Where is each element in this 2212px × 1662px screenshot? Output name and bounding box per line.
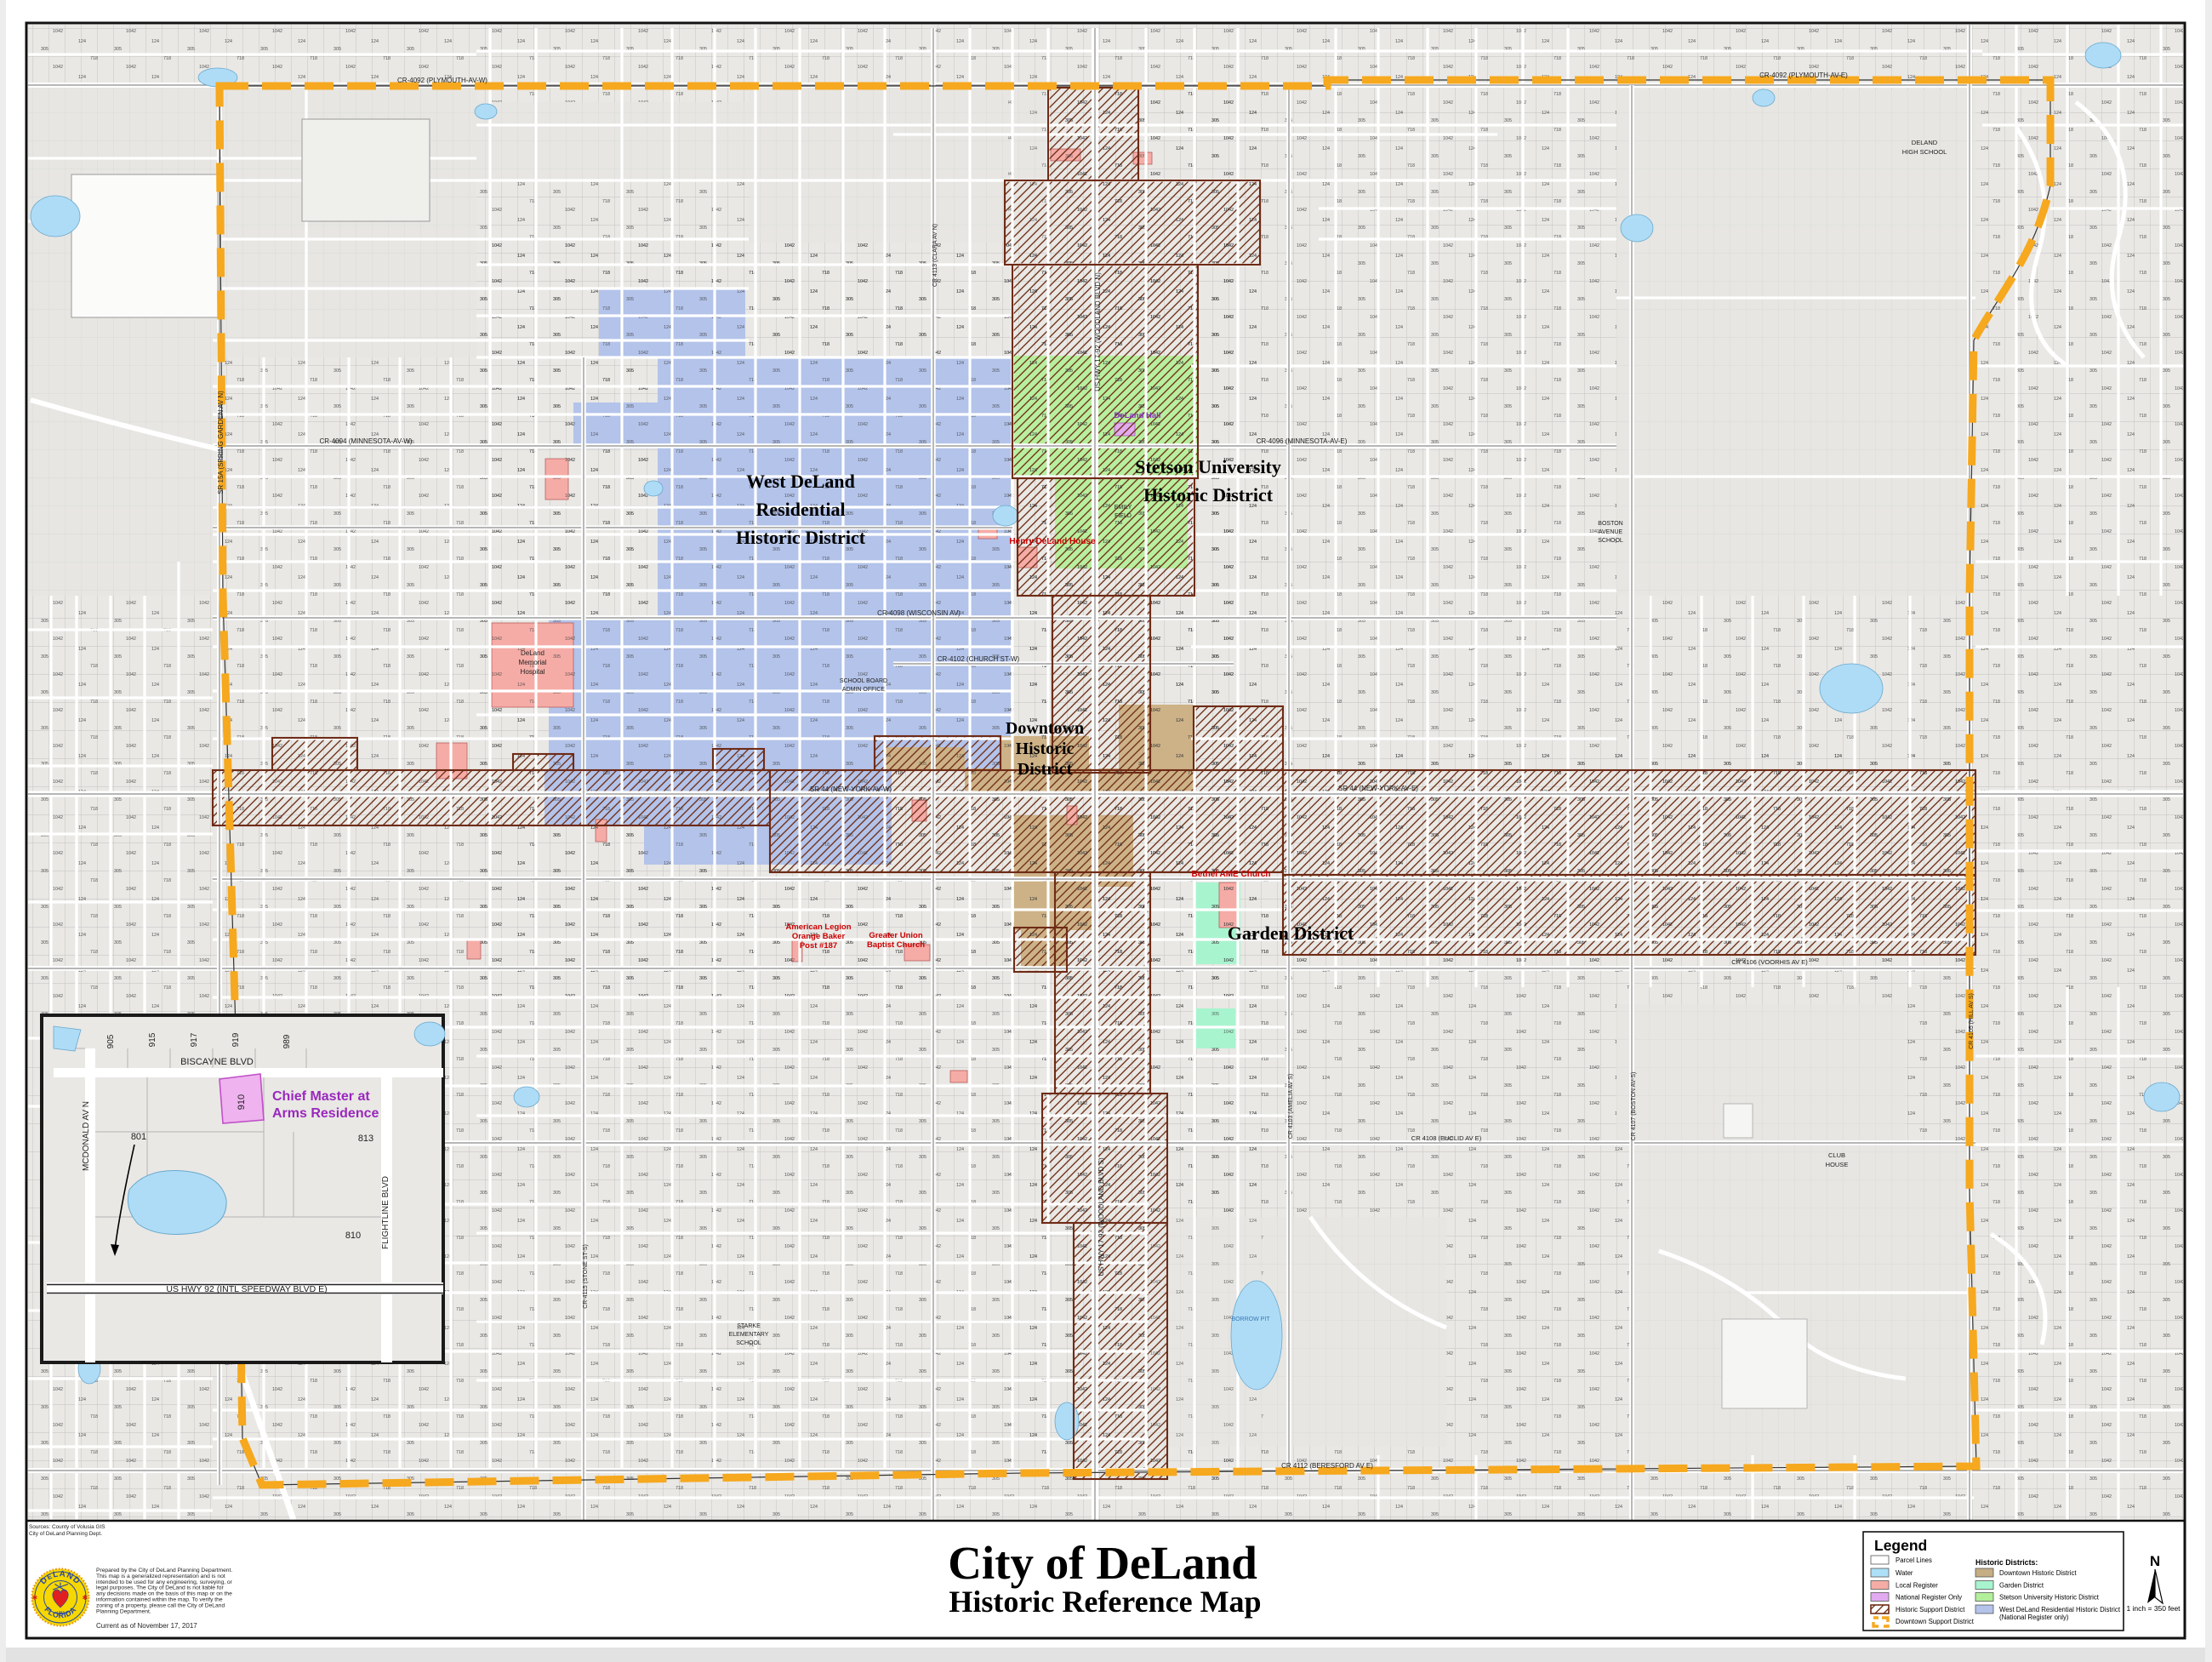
svg-text:West DeLand Residential Histor: West DeLand Residential Historic Distric… (1999, 1606, 2121, 1613)
svg-text:Memorial: Memorial (519, 659, 547, 666)
svg-text:District: District (1018, 760, 1073, 779)
svg-text:801: 801 (131, 1132, 146, 1142)
svg-text:(National Register only): (National Register only) (1999, 1613, 2069, 1621)
svg-text:CR-4092 (PLYMOUTH-AV-E): CR-4092 (PLYMOUTH-AV-E) (1759, 71, 1848, 79)
svg-text:CR 4107 (BOSTON AV-S): CR 4107 (BOSTON AV-S) (1631, 1072, 1637, 1141)
svg-text:SCHOOL BOARD: SCHOOL BOARD (840, 678, 887, 684)
svg-text:SR 44 (NEW-YORK-AV-W): SR 44 (NEW-YORK-AV-W) (810, 785, 892, 793)
svg-text:Historic District: Historic District (1143, 484, 1274, 505)
svg-text:905: 905 (106, 1034, 116, 1048)
svg-text:HOUSE: HOUSE (1826, 1161, 1849, 1168)
svg-text:EMILY: EMILY (1115, 505, 1132, 511)
svg-text:810: 810 (345, 1231, 361, 1241)
svg-text:City of DeLand Planning Dept.: City of DeLand Planning Dept. (29, 1531, 102, 1537)
svg-text:Historic: Historic (1016, 740, 1075, 758)
svg-text:Residential: Residential (755, 499, 845, 520)
svg-text:✱: ✱ (83, 1594, 88, 1602)
svg-text:N: N (2150, 1553, 2160, 1569)
svg-text:Post #187: Post #187 (800, 941, 837, 951)
svg-text:CR-4102 (CHURCH ST-W): CR-4102 (CHURCH ST-W) (938, 655, 1020, 663)
svg-text:CR 4108 (EUCLID AV E): CR 4108 (EUCLID AV E) (1411, 1134, 1482, 1142)
svg-text:Arms Residence: Arms Residence (272, 1106, 379, 1121)
svg-text:US HWY 17-92 (WOODLAND BLVD N): US HWY 17-92 (WOODLAND BLVD N) (1094, 272, 1102, 391)
svg-text:Garden District: Garden District (1999, 1582, 2044, 1590)
svg-text:Greater Union: Greater Union (869, 931, 923, 940)
svg-text:ADMIN OFFICE: ADMIN OFFICE (842, 687, 885, 693)
svg-text:Historic Support District: Historic Support District (1896, 1606, 1965, 1613)
svg-text:Sources: County of Volusia GIS: Sources: County of Volusia GIS (29, 1524, 105, 1530)
svg-text:CR 4106 (VOORHIS AV E): CR 4106 (VOORHIS AV E) (1731, 958, 1808, 966)
svg-text:Stetson University: Stetson University (1135, 456, 1281, 477)
svg-text:Chief Master at: Chief Master at (272, 1089, 370, 1104)
svg-text:CR-4096 (MINNESOTA-AV-E): CR-4096 (MINNESOTA-AV-E) (1257, 437, 1348, 445)
svg-text:Parcel Lines: Parcel Lines (1896, 1556, 1932, 1564)
svg-text:SCHOOL: SCHOOL (736, 1340, 761, 1346)
svg-text:CR 4112 (BERESFORD AV E): CR 4112 (BERESFORD AV E) (1281, 1462, 1373, 1470)
svg-text:Downtown: Downtown (1006, 719, 1084, 738)
svg-text:919: 919 (231, 1032, 241, 1047)
svg-text:US HWY 92 (INTL SPEEDWAY BLVD: US HWY 92 (INTL SPEEDWAY BLVD E) (166, 1284, 327, 1294)
svg-text:City of DeLand: City of DeLand (948, 1537, 1257, 1589)
svg-text:Orange Baker: Orange Baker (792, 932, 846, 941)
svg-text:BORROW PIT: BORROW PIT (1231, 1316, 1270, 1322)
svg-text:US HWY 17-92 (WOODLAND BLVD S): US HWY 17-92 (WOODLAND BLVD S) (1097, 1157, 1105, 1276)
svg-text:Hospital: Hospital (521, 668, 545, 676)
svg-text:1882: 1882 (57, 1610, 66, 1614)
svg-text:Local Register: Local Register (1896, 1582, 1938, 1590)
svg-text:813: 813 (358, 1134, 373, 1144)
svg-text:CR-4098 (WISCONSIN AV): CR-4098 (WISCONSIN AV) (877, 609, 961, 617)
svg-text:Stetson University Historic Di: Stetson University Historic District (1999, 1594, 2100, 1602)
svg-text:DeLand: DeLand (521, 649, 544, 657)
svg-text:MCDONALD AV N: MCDONALD AV N (82, 1101, 91, 1171)
svg-text:CR-4092 (PLYMOUTH-AV-W): CR-4092 (PLYMOUTH-AV-W) (397, 77, 487, 84)
svg-text:FLIGHTLINE BLVD: FLIGHTLINE BLVD (381, 1176, 391, 1249)
svg-text:Current as of November 17, 201: Current as of November 17, 2017 (96, 1622, 197, 1630)
svg-text:Historic District: Historic District (736, 527, 866, 548)
svg-text:DeLand Hall: DeLand Hall (1115, 411, 1161, 420)
svg-text:BISCAYNE BLVD: BISCAYNE BLVD (180, 1057, 254, 1067)
svg-text:CR 4105 (HILL AV S): CR 4105 (HILL AV S) (1969, 993, 1975, 1049)
svg-text:915: 915 (148, 1032, 157, 1047)
svg-text:CLUB: CLUB (1828, 1151, 1845, 1159)
svg-text:Downtown Historic District: Downtown Historic District (1999, 1569, 2077, 1577)
svg-text:Baptist Church: Baptist Church (867, 940, 925, 950)
svg-text:BOSTON: BOSTON (1598, 521, 1622, 527)
svg-text:CR 4103 (AMELIA AV S): CR 4103 (AMELIA AV S) (1288, 1074, 1294, 1139)
svg-text:DELAND: DELAND (1912, 139, 1938, 146)
svg-text:Henry DeLand House: Henry DeLand House (1009, 537, 1096, 546)
svg-text:Legend: Legend (1874, 1537, 1927, 1554)
svg-text:910: 910 (237, 1094, 247, 1110)
svg-text:West DeLand: West DeLand (746, 471, 855, 492)
svg-text:Planning Department.: Planning Department. (96, 1608, 151, 1614)
svg-text:Downtown Support District: Downtown Support District (1896, 1618, 1975, 1625)
svg-text:CR-4115 (STONE ST-S): CR-4115 (STONE ST-S) (583, 1244, 589, 1309)
svg-text:National Register Only: National Register Only (1896, 1594, 1962, 1602)
svg-text:989: 989 (282, 1034, 292, 1048)
svg-text:AVENUE: AVENUE (1599, 529, 1623, 535)
svg-text:CR-4094 (MINNESOTA-AV-W): CR-4094 (MINNESOTA-AV-W) (319, 437, 412, 445)
svg-text:FIELD: FIELD (1115, 513, 1132, 519)
svg-text:✱: ✱ (32, 1594, 38, 1602)
svg-text:SR 15A (SPRING GARDEN AV N): SR 15A (SPRING GARDEN AV N) (217, 391, 225, 494)
svg-text:Historic Districts:: Historic Districts: (1975, 1558, 2038, 1567)
svg-text:American Legion: American Legion (785, 922, 851, 932)
svg-text:917: 917 (190, 1032, 199, 1047)
svg-text:Garden District: Garden District (1228, 922, 1354, 944)
svg-text:Water: Water (1896, 1569, 1913, 1577)
svg-text:SR 44 (NEW-YORK-AV-E): SR 44 (NEW-YORK-AV-E) (1338, 785, 1418, 792)
svg-text:HIGH SCHOOL: HIGH SCHOOL (1902, 148, 1947, 156)
svg-text:1 inch = 350 feet: 1 inch = 350 feet (2126, 1604, 2181, 1613)
svg-text:SCHOOL: SCHOOL (1598, 538, 1623, 544)
svg-text:STARKE: STARKE (737, 1323, 761, 1329)
svg-text:Bethel AME Church: Bethel AME Church (1192, 870, 1271, 879)
svg-text:ELEMENTARY: ELEMENTARY (729, 1332, 769, 1338)
svg-text:CR 4113 (CLARA AV N): CR 4113 (CLARA AV N) (932, 224, 938, 287)
svg-text:Historic Reference Map: Historic Reference Map (949, 1585, 1261, 1619)
